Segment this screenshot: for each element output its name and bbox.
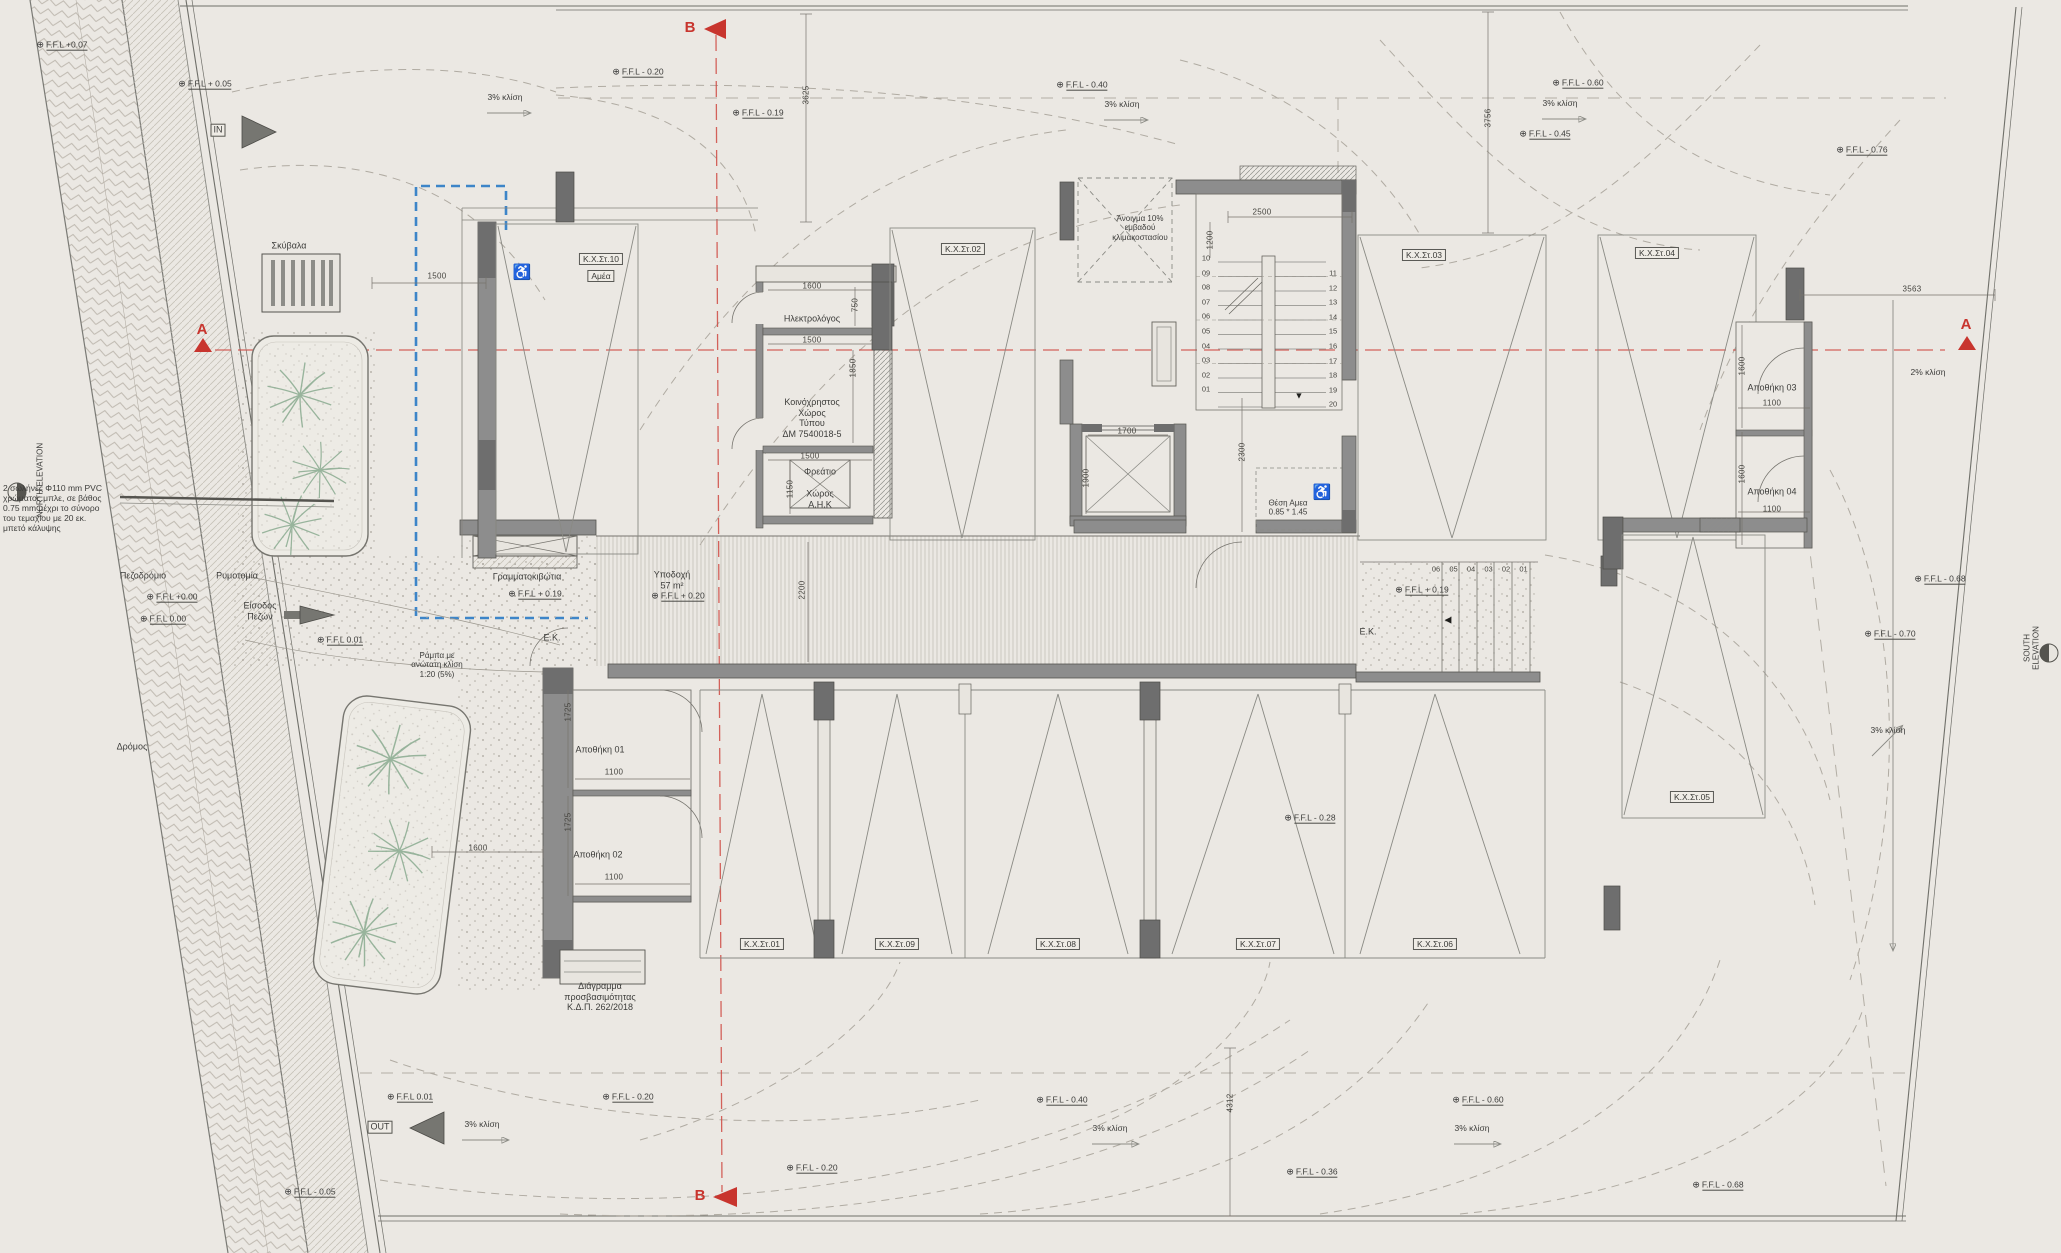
label-north-elevation: NORTH ELEVATION <box>35 443 44 517</box>
annotation-layer: ⊕F.F.L +0.07⊕F.F.L + 0.05⊕F.F.L - 0.20⊕F… <box>0 0 2061 1253</box>
stall-01: K.X.Στ.01 <box>740 938 784 950</box>
room-shaft: Φρεάτιο <box>804 467 836 478</box>
ffl-lobby-3-text: F.F.L + 0.19 <box>1405 585 1449 596</box>
ffl-bottom-2-text: F.F.L - 0.05 <box>294 1187 336 1198</box>
room-storage-01: Αποθήκη 01 <box>575 745 624 756</box>
room-common: Κοινόχρηστος Χώρος Τύπου ΔΜ 7540018-5 <box>782 397 841 439</box>
ffl-top-2-text: F.F.L - 0.19 <box>742 108 784 119</box>
ffl-bottom-3: ⊕F.F.L - 0.20 <box>602 1092 653 1103</box>
ffl-lobby-2: ⊕F.F.L + 0.20 <box>651 591 704 602</box>
level-marker-icon: ⊕ <box>1286 1167 1294 1177</box>
level-marker-icon: ⊕ <box>146 592 154 602</box>
label-ped-entrance: Είσοδος Πεζών <box>244 600 277 621</box>
label-road: Δρόμος <box>117 742 148 753</box>
dim-1725-a: 1725 <box>563 703 572 722</box>
ffl-east-1-text: F.F.L - 0.68 <box>1924 574 1966 585</box>
section-b-bottom: B <box>695 1187 706 1205</box>
dim-1500-b: 1500 <box>803 335 822 344</box>
ffl-top-right: ⊕F.F.L - 0.76 <box>1836 145 1887 156</box>
stair-a-02: 02 <box>1202 370 1210 379</box>
dim-1900: 1900 <box>1081 469 1090 488</box>
ffl-bottom-7: ⊕F.F.L - 0.60 <box>1452 1095 1503 1106</box>
stall-10: K.X.Στ.10 <box>579 253 623 265</box>
dim-750: 750 <box>850 298 859 312</box>
slope-top-1: 3% κλίση <box>487 92 522 102</box>
ffl-lobby-2-text: F.F.L + 0.20 <box>661 591 705 602</box>
ffl-top-left-2: ⊕F.F.L + 0.05 <box>178 79 231 90</box>
site-plan: ⊕F.F.L +0.07⊕F.F.L + 0.05⊕F.F.L - 0.20⊕F… <box>0 0 2061 1253</box>
room-storage-02: Αποθήκη 02 <box>573 850 622 861</box>
label-street-line: Ρυμοτομία <box>216 571 258 582</box>
stair-a-01: 01 <box>1202 385 1210 394</box>
stair-b-17: 17 <box>1329 356 1337 365</box>
stair-b-15: 15 <box>1329 327 1337 336</box>
ffl-top-3: ⊕F.F.L - 0.40 <box>1056 80 1107 91</box>
room-ahk: Χώρος Α.Η.Κ <box>806 488 834 509</box>
dim-1600-r1: 1600 <box>1737 357 1746 376</box>
slope-top-3: 3% κλίση <box>1542 98 1577 108</box>
ffl-lobby-1-text: F.F.L + 0.19 <box>518 589 562 600</box>
stair-a-05: 05 <box>1202 327 1210 336</box>
ffl-bottom-7-text: F.F.L - 0.60 <box>1462 1095 1504 1106</box>
label-south-elevation: SOUTH ELEVATION <box>2023 626 2042 670</box>
stair-a-04: 04 <box>1202 341 1210 350</box>
ffl-top-4: ⊕F.F.L - 0.60 <box>1552 78 1603 89</box>
ffl-bottom-8: ⊕F.F.L - 0.68 <box>1692 1180 1743 1191</box>
ext-step-03: 03 <box>1484 565 1492 574</box>
ffl-bottom-4: ⊕F.F.L - 0.20 <box>786 1163 837 1174</box>
stair-b-19: 19 <box>1329 385 1337 394</box>
dim-1150: 1150 <box>785 480 794 498</box>
level-marker-icon: ⊕ <box>786 1163 794 1173</box>
stair-down-arrow: ▼ <box>1295 391 1304 402</box>
slope-top-2: 3% κλίση <box>1104 99 1139 109</box>
level-marker-icon: ⊕ <box>1452 1095 1460 1105</box>
room-reception: Υποδοχή 57 m² <box>654 569 691 590</box>
level-marker-icon: ⊕ <box>178 79 186 89</box>
stall-04: K.X.Στ.04 <box>1635 247 1679 259</box>
room-ek-right: E.K. <box>1359 627 1376 638</box>
dim-1700: 1700 <box>1118 426 1137 435</box>
section-b-top: B <box>685 19 696 37</box>
level-marker-icon: ⊕ <box>1864 629 1872 639</box>
ffl-bottom-8-text: F.F.L - 0.68 <box>1702 1180 1744 1191</box>
room-garbage: Σκύβαλα <box>272 241 307 252</box>
dim-4312: 4312 <box>1225 1094 1234 1113</box>
level-marker-icon: ⊕ <box>1914 574 1922 584</box>
ffl-bottom-5-text: F.F.L - 0.40 <box>1046 1095 1088 1106</box>
ffl-top-right-text: F.F.L - 0.76 <box>1846 145 1888 156</box>
ffl-top-1: ⊕F.F.L - 0.20 <box>612 67 663 78</box>
level-marker-icon: ⊕ <box>1284 813 1292 823</box>
note-stair-opening: Άνοιγμα 10% εμβαδού κλιμακοστασίου <box>1112 214 1168 242</box>
level-marker-icon: ⊕ <box>387 1092 395 1102</box>
ffl-east-2-text: F.F.L - 0.70 <box>1874 629 1916 640</box>
ffl-lobby-3: ⊕F.F.L + 0.19 <box>1395 585 1448 596</box>
level-marker-icon: ⊕ <box>140 614 148 624</box>
room-electrician: Ηλεκτρολόγος <box>784 314 840 325</box>
note-pvc-pipes: 2 σωλήνες Φ110 mm PVC χρώματος μπλε, σε … <box>3 483 102 533</box>
dim-1200: 1200 <box>1205 231 1214 250</box>
room-storage-03: Αποθήκη 03 <box>1747 383 1796 394</box>
stair-b-13: 13 <box>1329 298 1337 307</box>
stair-b-16: 16 <box>1329 342 1337 351</box>
dim-2200: 2200 <box>797 581 806 600</box>
level-marker-icon: ⊕ <box>1056 80 1064 90</box>
level-marker-icon: ⊕ <box>1692 1180 1700 1190</box>
ffl-top-left-2-text: F.F.L + 0.05 <box>188 79 232 90</box>
dim-1100-b: 1100 <box>605 872 623 881</box>
section-a-left: A <box>197 321 208 339</box>
stall-06: K.X.Στ.06 <box>1413 938 1457 950</box>
room-mailboxes: Γραμματοκιβώτια <box>493 572 562 583</box>
note-ramp: Ράμπα με ανώτατη κλίση 1:20 (5%) <box>411 651 462 679</box>
stall-05: K.X.Στ.05 <box>1670 791 1714 803</box>
label-sidewalk: Πεζοδρόμιο <box>120 571 166 582</box>
stair-a-06: 06 <box>1202 312 1210 321</box>
stair-b-11: 11 <box>1329 269 1337 278</box>
level-marker-icon: ⊕ <box>284 1187 292 1197</box>
level-marker-icon: ⊕ <box>508 589 516 599</box>
dim-1850: 1850 <box>848 359 857 378</box>
slope-east-2: 3% κλίση <box>1870 725 1905 735</box>
stall-02: K.X.Στ.02 <box>941 243 985 255</box>
stall-09: K.X.Στ.09 <box>875 938 919 950</box>
level-marker-icon: ⊕ <box>1395 585 1403 595</box>
ffl-west-3: ⊕F.F.L 0.01 <box>317 635 363 646</box>
dim-1500-a: 1500 <box>428 271 447 280</box>
ffl-mid-right-text: F.F.L - 0.28 <box>1294 813 1336 824</box>
ffl-top-4-text: F.F.L - 0.60 <box>1562 78 1604 89</box>
ffl-bottom-1: ⊕F.F.L 0.01 <box>387 1092 433 1103</box>
ffl-east-2: ⊕F.F.L - 0.70 <box>1864 629 1915 640</box>
ffl-top-2: ⊕F.F.L - 0.19 <box>732 108 783 119</box>
stall-10-amea: Αμέα <box>587 270 614 282</box>
level-marker-icon: ⊕ <box>612 67 620 77</box>
dim-3625: 3625 <box>801 86 810 105</box>
marker-in: IN <box>211 124 226 137</box>
slope-bottom-2: 3% κλίση <box>1092 1123 1127 1133</box>
level-marker-icon: ⊕ <box>651 591 659 601</box>
wheelchair-core: ♿ <box>1313 484 1332 502</box>
ffl-west-2-text: F.F.L 0.00 <box>150 614 187 625</box>
slope-east-1: 2% κλίση <box>1910 367 1945 377</box>
ffl-east-1: ⊕F.F.L - 0.68 <box>1914 574 1965 585</box>
level-marker-icon: ⊕ <box>1519 129 1527 139</box>
ext-step-01: 01 <box>1519 565 1527 574</box>
slope-bottom-1: 3% κλίση <box>464 1119 499 1129</box>
wheelchair-stall10: ♿ <box>513 264 532 282</box>
dim-1100-r1: 1100 <box>1763 398 1781 407</box>
ext-step-05: 05 <box>1449 565 1457 574</box>
marker-out: OUT <box>368 1121 393 1134</box>
room-ek-left: E.K. <box>543 633 560 644</box>
ffl-west-1-text: F.F.L +0.00 <box>156 592 198 603</box>
ffl-bottom-2: ⊕F.F.L - 0.05 <box>284 1187 335 1198</box>
stair-b-20: 20 <box>1329 400 1337 409</box>
dim-1600-pl: 1600 <box>469 843 488 852</box>
dim-3563: 3563 <box>1903 284 1922 293</box>
ffl-mid-right: ⊕F.F.L - 0.28 <box>1284 813 1335 824</box>
note-disabled-spot: Θέση Αμεα 0.85 * 1.45 <box>1268 499 1307 518</box>
dim-1725-b: 1725 <box>563 813 572 832</box>
ffl-west-2: ⊕F.F.L 0.00 <box>140 614 186 625</box>
ext-step-06: 06 <box>1432 565 1440 574</box>
ffl-top-1-text: F.F.L - 0.20 <box>622 67 664 78</box>
stair-a-07: 07 <box>1202 297 1210 306</box>
dim-1500-c: 1500 <box>801 451 820 460</box>
dim-2500: 2500 <box>1253 207 1272 216</box>
dim-1100-a: 1100 <box>605 767 623 776</box>
level-marker-icon: ⊕ <box>1036 1095 1044 1105</box>
ffl-top-left-text: F.F.L +0.07 <box>46 40 88 51</box>
level-marker-icon: ⊕ <box>732 108 740 118</box>
level-marker-icon: ⊕ <box>602 1092 610 1102</box>
steps-direction-arrow: ◀ <box>1445 615 1452 626</box>
ffl-bottom-6: ⊕F.F.L - 0.36 <box>1286 1167 1337 1178</box>
stair-a-03: 03 <box>1202 356 1210 365</box>
slope-bottom-3: 3% κλίση <box>1454 1123 1489 1133</box>
dim-3756: 3756 <box>1483 109 1492 128</box>
level-marker-icon: ⊕ <box>1836 145 1844 155</box>
ffl-bottom-6-text: F.F.L - 0.36 <box>1296 1167 1338 1178</box>
note-accessibility: Διάγραμμα προσβασιμότητας Κ.Δ.Π. 262/201… <box>564 981 635 1013</box>
dim-1600-r2: 1600 <box>1737 465 1746 484</box>
stall-07: K.X.Στ.07 <box>1236 938 1280 950</box>
stair-a-10: 10 <box>1202 254 1210 263</box>
ffl-bottom-1-text: F.F.L 0.01 <box>397 1092 434 1103</box>
ext-step-02: 02 <box>1502 565 1510 574</box>
dim-1600-el: 1600 <box>803 281 822 290</box>
ffl-bottom-3-text: F.F.L - 0.20 <box>612 1092 654 1103</box>
ffl-bottom-5: ⊕F.F.L - 0.40 <box>1036 1095 1087 1106</box>
ffl-top-3-text: F.F.L - 0.40 <box>1066 80 1108 91</box>
level-marker-icon: ⊕ <box>317 635 325 645</box>
ffl-west-1: ⊕F.F.L +0.00 <box>146 592 197 603</box>
dim-2300: 2300 <box>1237 443 1246 462</box>
stair-a-09: 09 <box>1202 268 1210 277</box>
ffl-bottom-4-text: F.F.L - 0.20 <box>796 1163 838 1174</box>
level-marker-icon: ⊕ <box>1552 78 1560 88</box>
stall-08: K.X.Στ.08 <box>1036 938 1080 950</box>
stall-03: K.X.Στ.03 <box>1402 249 1446 261</box>
dim-1100-r2: 1100 <box>1763 504 1781 513</box>
level-marker-icon: ⊕ <box>36 40 44 50</box>
section-a-right: A <box>1961 316 1972 334</box>
ext-step-04: 04 <box>1467 565 1475 574</box>
ffl-top-5-text: F.F.L - 0.45 <box>1529 129 1571 140</box>
ffl-lobby-1: ⊕F.F.L + 0.19 <box>508 589 561 600</box>
ffl-top-5: ⊕F.F.L - 0.45 <box>1519 129 1570 140</box>
stair-b-12: 12 <box>1329 283 1337 292</box>
ffl-top-left: ⊕F.F.L +0.07 <box>36 40 87 51</box>
room-storage-04: Αποθήκη 04 <box>1747 487 1796 498</box>
stair-b-18: 18 <box>1329 371 1337 380</box>
stair-b-14: 14 <box>1329 312 1337 321</box>
ffl-west-3-text: F.F.L 0.01 <box>327 635 364 646</box>
stair-a-08: 08 <box>1202 283 1210 292</box>
